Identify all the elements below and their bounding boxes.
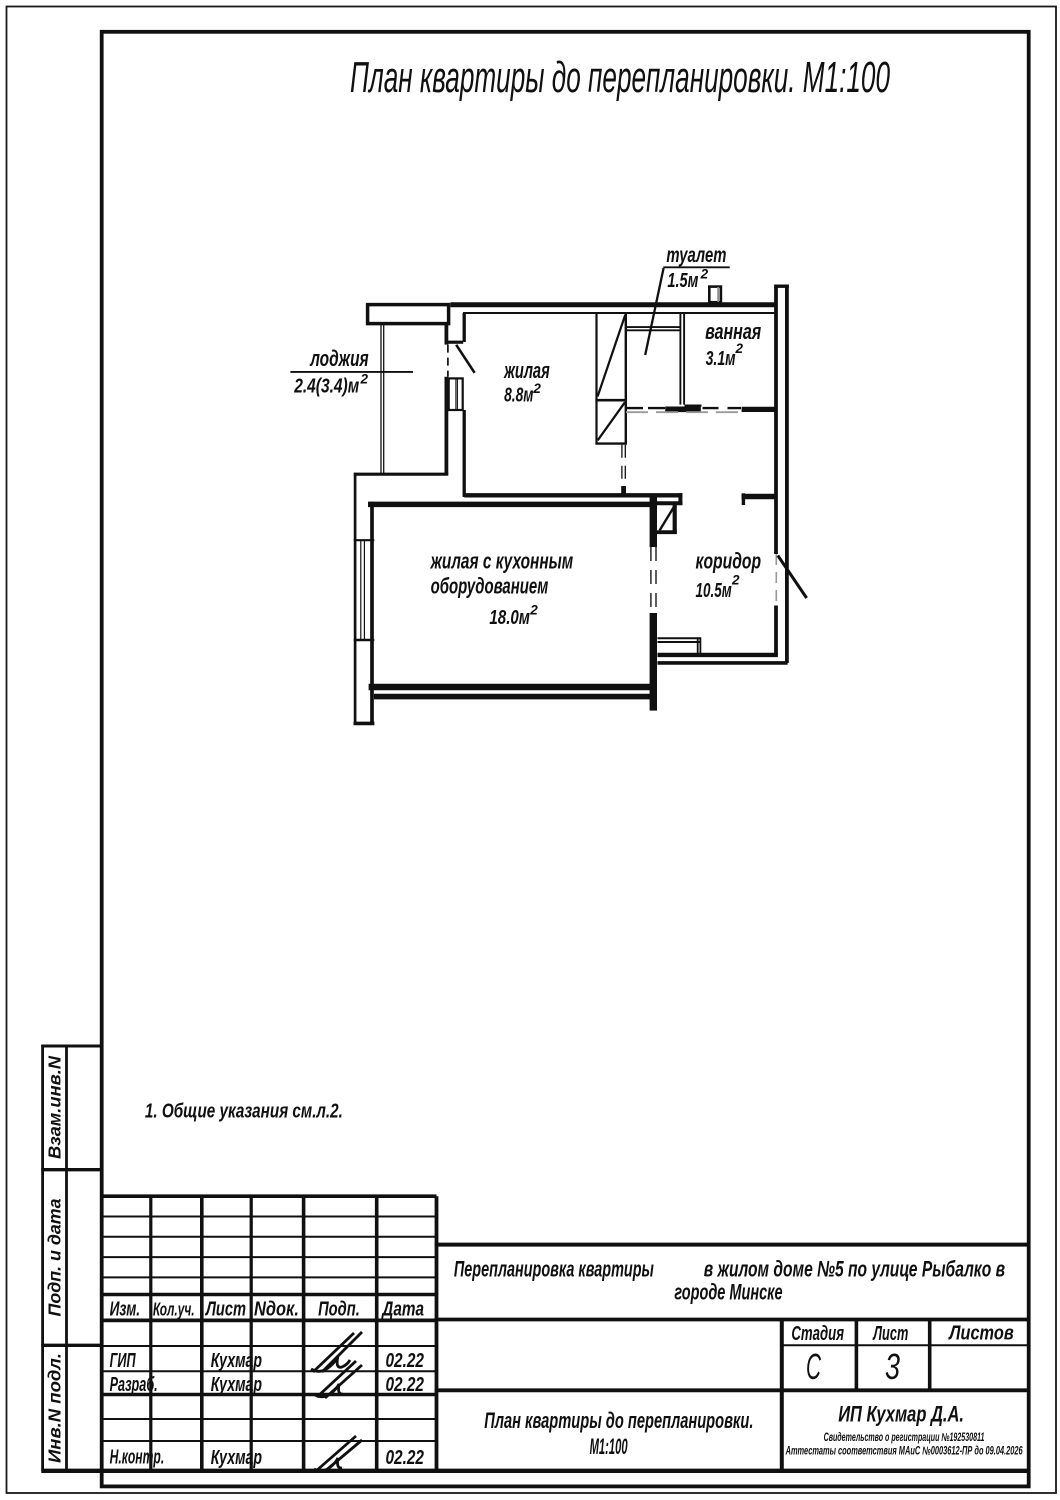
- svg-text:Дата: Дата: [381, 1299, 424, 1321]
- svg-text:Лист: Лист: [204, 1299, 246, 1321]
- svg-text:Инв.N подл.: Инв.N подл.: [45, 1353, 65, 1463]
- svg-text:Листов: Листов: [948, 1323, 1014, 1345]
- svg-text:2: 2: [529, 603, 538, 618]
- svg-text:Кухмар: Кухмар: [211, 1374, 262, 1396]
- svg-text:М1:100: М1:100: [590, 1434, 628, 1459]
- svg-text:Свидетельство о регистрации №1: Свидетельство о регистрации №192530811: [824, 1432, 985, 1444]
- svg-text:Кол.уч.: Кол.уч.: [153, 1300, 195, 1320]
- svg-text:Н.контр.: Н.контр.: [110, 1447, 165, 1469]
- svg-text:жилая: жилая: [503, 358, 549, 383]
- svg-text:02.22: 02.22: [386, 1447, 425, 1469]
- svg-text:Взам.инв.N: Взам.инв.N: [45, 1056, 65, 1159]
- svg-text:оборудованием: оборудованием: [431, 573, 549, 598]
- svg-text:2: 2: [360, 372, 369, 387]
- svg-text:02.22: 02.22: [386, 1374, 425, 1396]
- svg-text:8.8м: 8.8м: [504, 385, 534, 407]
- svg-text:План квартиры до перепланировк: План квартиры до перепланировки.: [484, 1408, 753, 1433]
- svg-text:Nдок.: Nдок.: [254, 1299, 299, 1321]
- svg-text:туалет: туалет: [666, 244, 726, 267]
- svg-text:2: 2: [731, 573, 740, 588]
- svg-text:ИП Кухмар Д.А.: ИП Кухмар Д.А.: [838, 1401, 964, 1426]
- svg-text:2: 2: [735, 341, 744, 356]
- svg-text:городе Минске: городе Минске: [674, 1280, 782, 1305]
- svg-text:02.22: 02.22: [386, 1350, 425, 1372]
- svg-text:Лист: Лист: [872, 1323, 908, 1345]
- svg-text:Подп. и дата: Подп. и дата: [45, 1198, 65, 1316]
- svg-text:ГИП: ГИП: [110, 1350, 136, 1372]
- svg-text:Стадия: Стадия: [791, 1323, 844, 1345]
- svg-text:Перепланировка квартиры: Перепланировка квартиры: [454, 1257, 654, 1282]
- svg-text:План квартиры до перепланировк: План квартиры до перепланировки. М1:100: [350, 53, 890, 102]
- svg-text:18.0м: 18.0м: [489, 607, 530, 629]
- svg-text:2: 2: [700, 267, 709, 282]
- svg-text:2: 2: [532, 381, 541, 396]
- svg-text:Подп.: Подп.: [318, 1299, 360, 1321]
- svg-text:10.5м: 10.5м: [696, 580, 732, 602]
- svg-text:Изм.: Изм.: [110, 1299, 141, 1321]
- svg-text:лоджия: лоджия: [309, 346, 368, 371]
- svg-text:в жилом доме №5 по улице Рыбал: в жилом доме №5 по улице Рыбалко в: [704, 1257, 1006, 1282]
- svg-text:ванная: ванная: [705, 319, 761, 344]
- svg-text:С: С: [806, 1346, 822, 1387]
- svg-text:Аттестаты соответствия МАиС №0: Аттестаты соответствия МАиС №0003612-ПР …: [785, 1446, 1023, 1458]
- svg-text:Кухмар: Кухмар: [211, 1350, 262, 1372]
- svg-text:жилая с кухонным: жилая с кухонным: [430, 549, 573, 574]
- svg-text:3.1м: 3.1м: [706, 348, 736, 370]
- svg-text:Разраб.: Разраб.: [110, 1374, 158, 1396]
- svg-text:коридор: коридор: [696, 549, 762, 574]
- svg-text:3: 3: [885, 1346, 900, 1387]
- svg-text:1. Общие указания см.л.2.: 1. Общие указания см.л.2.: [145, 1101, 343, 1123]
- svg-text:2.4(3.4)м: 2.4(3.4)м: [293, 376, 359, 398]
- svg-text:1.5м: 1.5м: [667, 270, 698, 292]
- svg-text:Кухмар: Кухмар: [211, 1447, 262, 1469]
